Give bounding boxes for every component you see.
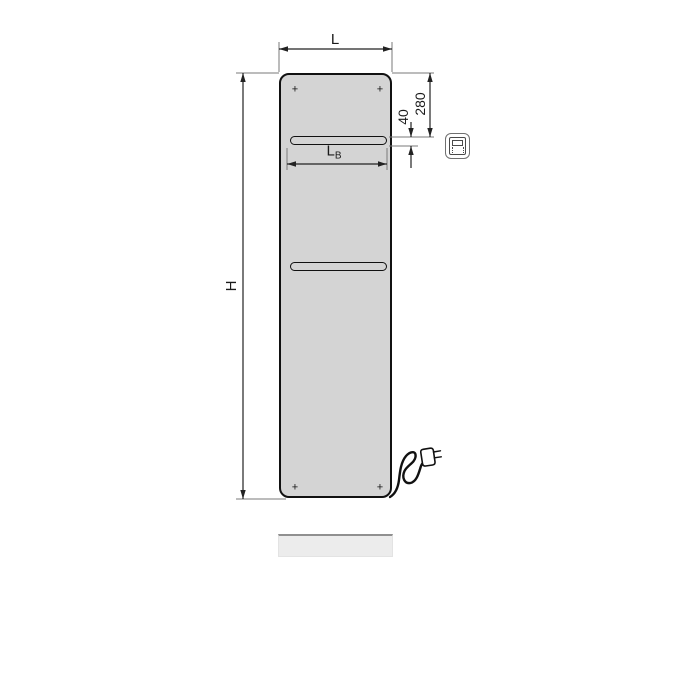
power-cable-and-plug [390, 448, 441, 497]
electric-radiator-icon-display [452, 140, 463, 146]
label-slot-height-40: 40 [396, 109, 410, 125]
electric-radiator-icon-heating-line [452, 147, 453, 153]
label-slot-width-LB: LB [326, 145, 341, 164]
label-offset-280: 280 [413, 92, 427, 115]
slot-height-dimension-40 [408, 122, 413, 168]
electric-radiator-icon-heating-line [463, 147, 464, 153]
plug-icon [421, 448, 435, 466]
height-dimension-H [240, 73, 245, 499]
power-cable [390, 452, 426, 497]
dimension-overlay [0, 0, 700, 700]
plug-prong [434, 451, 441, 452]
electric-radiator-icon [445, 133, 470, 159]
label-LB-subscript: B [335, 151, 342, 162]
offset-dimension-280 [427, 73, 432, 137]
label-width-L: L [331, 33, 339, 47]
radiator-dimension-drawing: + + + + [0, 0, 700, 700]
electric-radiator-icon-frame [449, 137, 466, 155]
plug-prong [434, 457, 441, 458]
label-height-H: H [225, 281, 239, 292]
